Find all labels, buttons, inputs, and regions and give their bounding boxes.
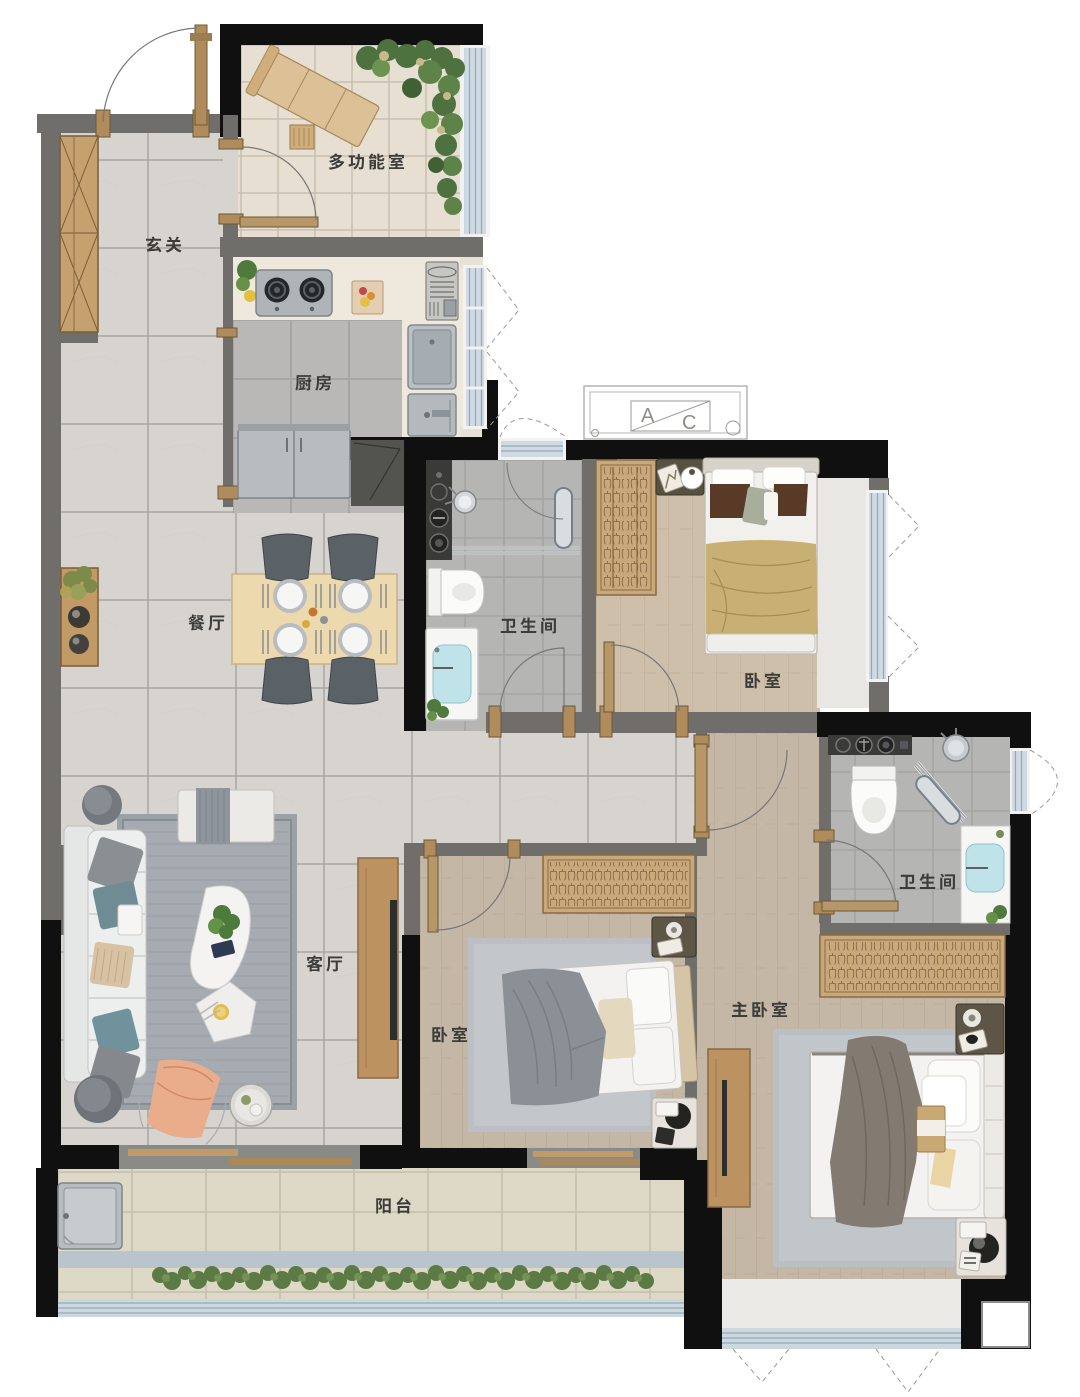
svg-text:C: C — [682, 412, 696, 434]
svg-text:A: A — [641, 405, 655, 427]
